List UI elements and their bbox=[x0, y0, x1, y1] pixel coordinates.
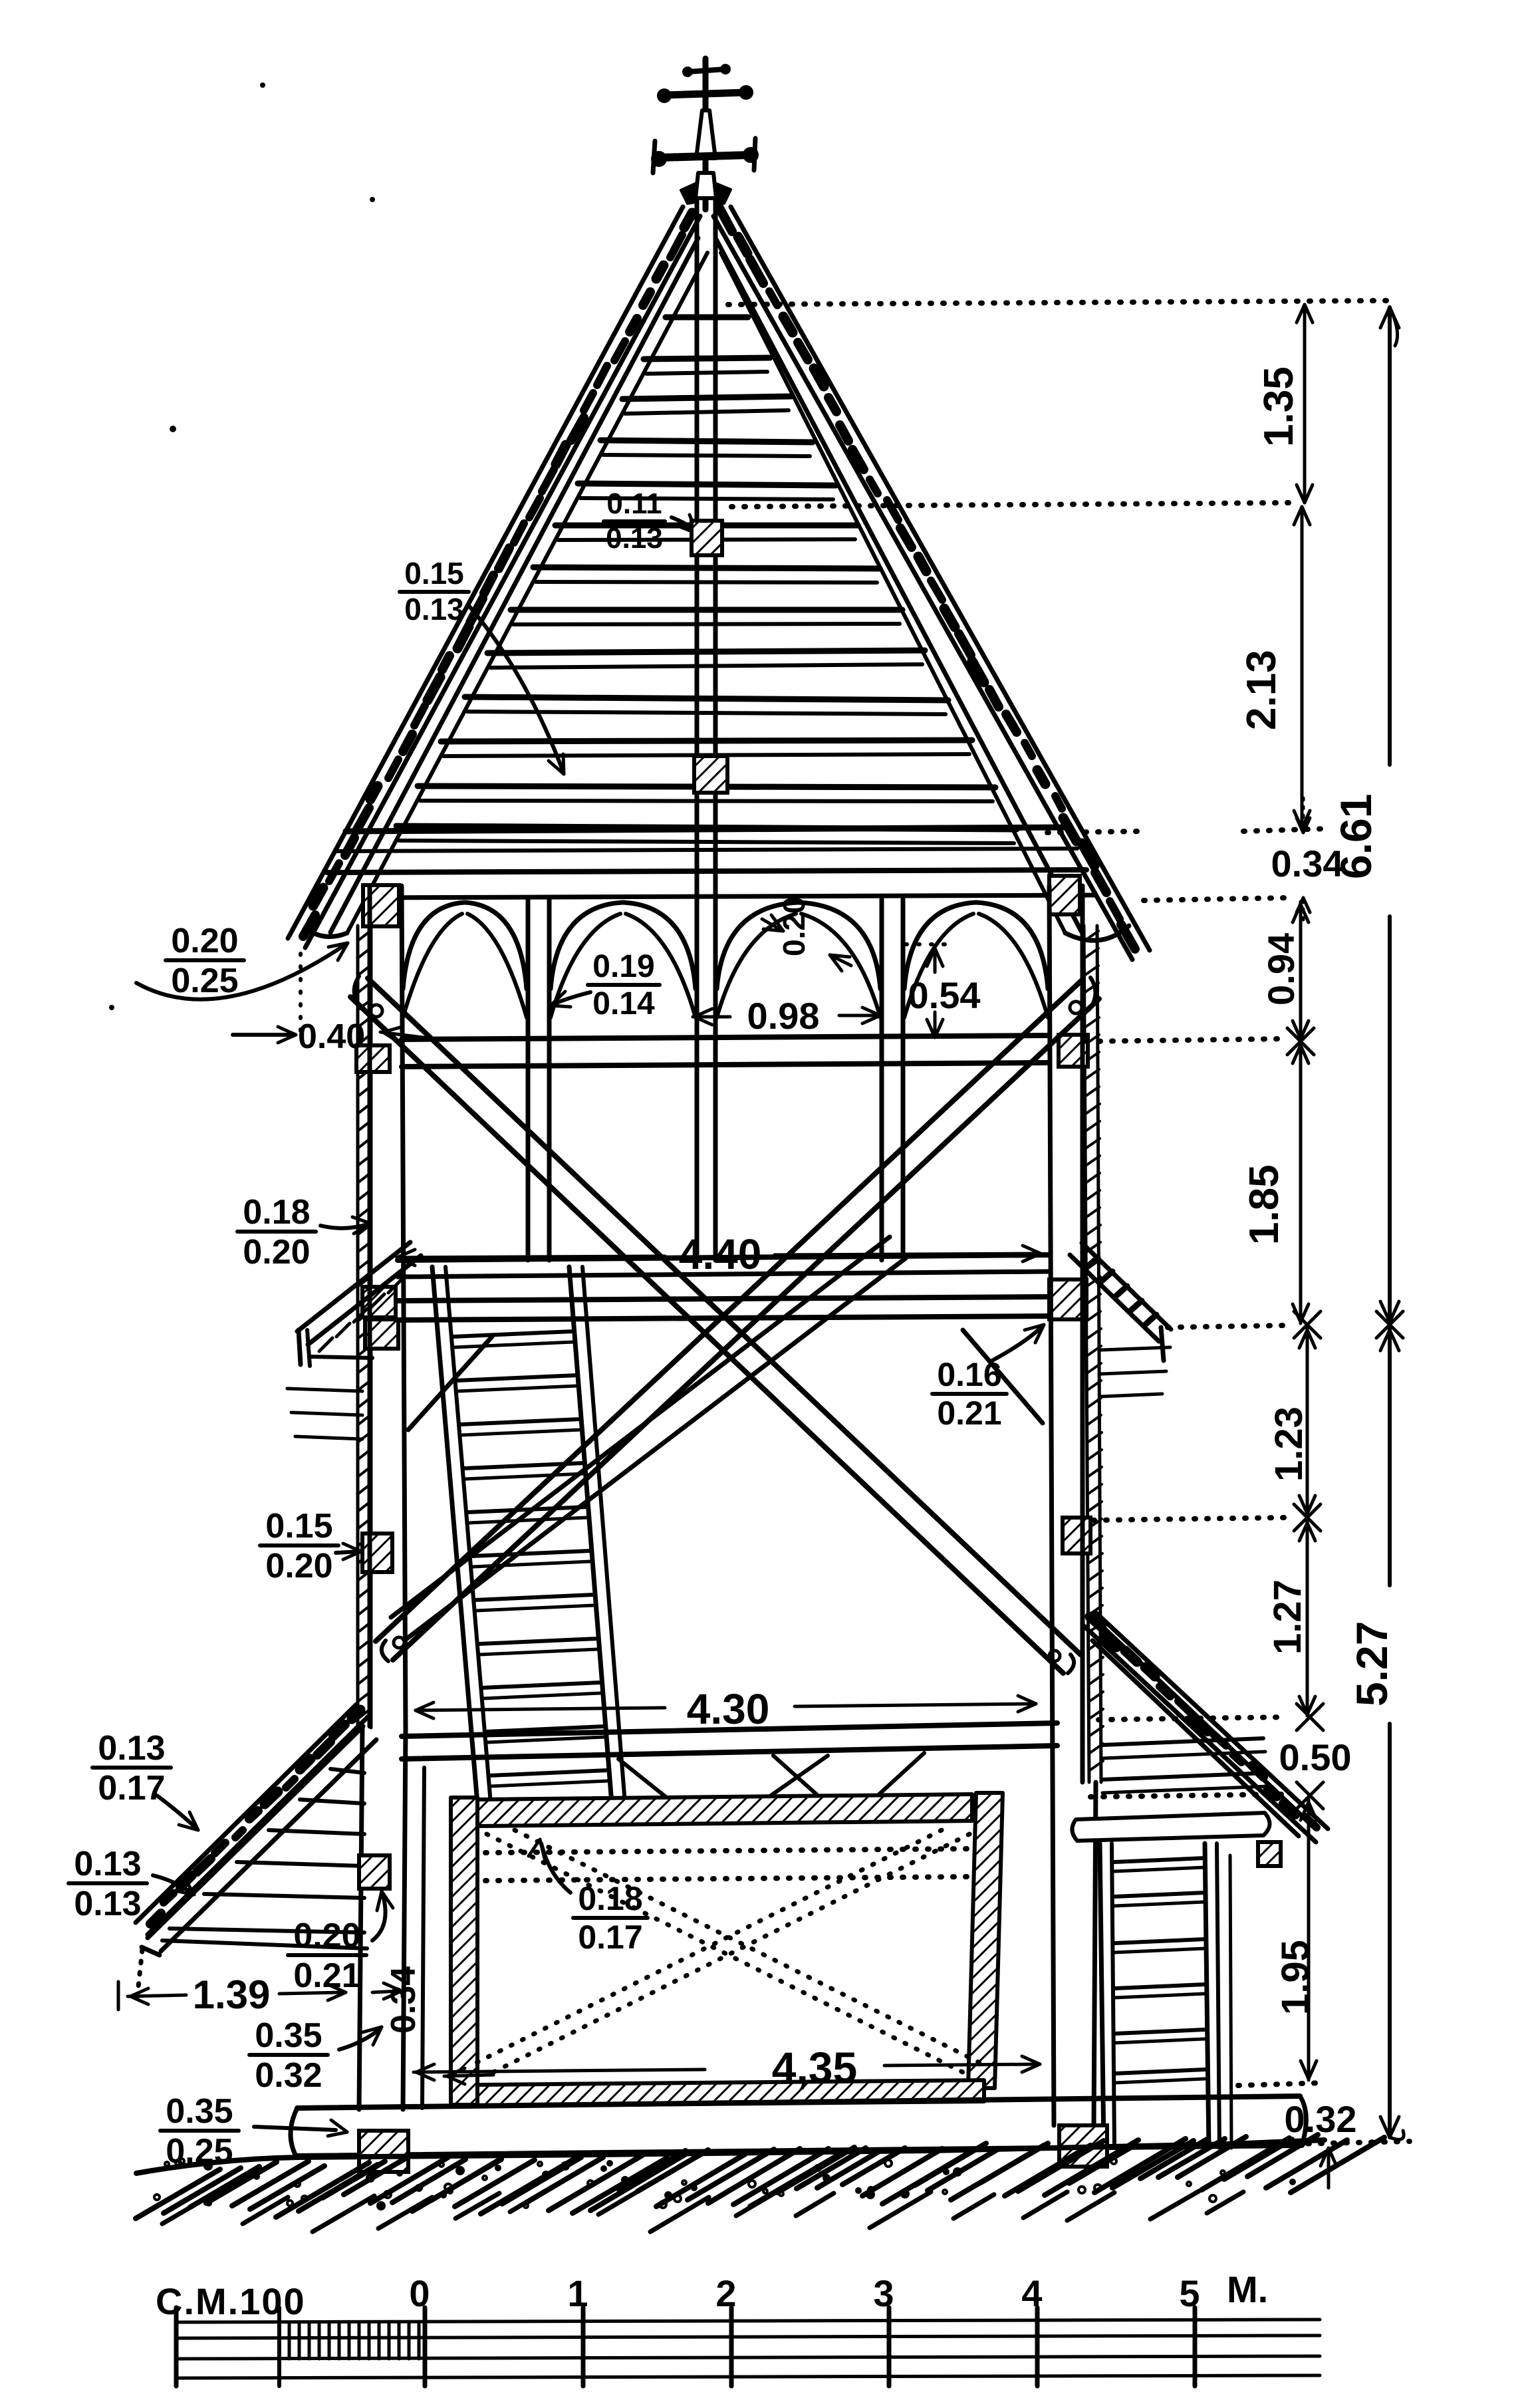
svg-text:1.95: 1.95 bbox=[1274, 1940, 1317, 2015]
svg-text:0.21: 0.21 bbox=[937, 1395, 1001, 1432]
svg-text:4: 4 bbox=[1021, 2272, 1042, 2314]
svg-text:0.35: 0.35 bbox=[255, 2016, 322, 2055]
svg-text:1.85: 1.85 bbox=[1241, 1164, 1287, 1245]
svg-text:0.54: 0.54 bbox=[908, 974, 981, 1016]
svg-text:0.35: 0.35 bbox=[166, 2092, 233, 2131]
svg-text:0.34: 0.34 bbox=[384, 1966, 423, 2034]
svg-text:1.35: 1.35 bbox=[1256, 366, 1302, 447]
svg-text:0.25: 0.25 bbox=[171, 962, 238, 1000]
svg-text:5.27: 5.27 bbox=[1347, 1621, 1396, 1706]
svg-text:0.94: 0.94 bbox=[1260, 933, 1302, 1005]
svg-text:C.M.100: C.M.100 bbox=[156, 2280, 306, 2322]
svg-text:4.40: 4.40 bbox=[679, 1230, 762, 1278]
svg-text:0.17: 0.17 bbox=[98, 1769, 165, 1807]
svg-text:4,35: 4,35 bbox=[772, 2043, 857, 2092]
svg-text:0.25: 0.25 bbox=[166, 2132, 233, 2171]
svg-text:0.20: 0.20 bbox=[293, 1917, 360, 1955]
svg-text:4.30: 4.30 bbox=[687, 1685, 770, 1733]
svg-text:0.32: 0.32 bbox=[255, 2056, 322, 2095]
svg-text:0.18: 0.18 bbox=[578, 1880, 642, 1917]
svg-text:1.39: 1.39 bbox=[193, 1972, 271, 2017]
svg-text:3: 3 bbox=[873, 2272, 894, 2314]
svg-text:0.50: 0.50 bbox=[1279, 1736, 1352, 1778]
svg-text:0: 0 bbox=[409, 2272, 430, 2314]
svg-text:0.20: 0.20 bbox=[243, 1233, 310, 1271]
svg-text:0.32: 0.32 bbox=[1285, 2098, 1357, 2140]
svg-text:2: 2 bbox=[715, 2272, 736, 2314]
svg-text:0.18: 0.18 bbox=[243, 1193, 310, 1232]
svg-text:0.13: 0.13 bbox=[606, 522, 663, 555]
svg-text:0.21: 0.21 bbox=[293, 1956, 360, 1995]
svg-text:M.: M. bbox=[1227, 2268, 1268, 2310]
svg-text:5: 5 bbox=[1179, 2272, 1200, 2314]
svg-text:0.14: 0.14 bbox=[592, 986, 655, 1021]
svg-text:0.17: 0.17 bbox=[578, 1919, 642, 1956]
svg-text:0.13: 0.13 bbox=[98, 1729, 165, 1768]
svg-text:0.98: 0.98 bbox=[747, 995, 820, 1037]
svg-text:0.13: 0.13 bbox=[404, 592, 464, 626]
svg-text:0.20: 0.20 bbox=[171, 922, 238, 960]
svg-text:0.40: 0.40 bbox=[298, 1017, 365, 1056]
svg-text:2.13: 2.13 bbox=[1239, 650, 1285, 730]
svg-text:0.15: 0.15 bbox=[404, 556, 464, 591]
svg-text:0.13: 0.13 bbox=[74, 1845, 141, 1883]
svg-text:0.20: 0.20 bbox=[265, 1547, 332, 1585]
svg-text:0.11: 0.11 bbox=[606, 487, 662, 520]
svg-text:6.61: 6.61 bbox=[1331, 794, 1380, 879]
svg-text:0.19: 0.19 bbox=[592, 949, 654, 984]
svg-text:0.13: 0.13 bbox=[74, 1885, 141, 1923]
svg-text:1.27: 1.27 bbox=[1266, 1579, 1309, 1655]
svg-text:0.15: 0.15 bbox=[265, 1507, 332, 1545]
svg-text:1: 1 bbox=[567, 2272, 588, 2314]
svg-text:1.23: 1.23 bbox=[1267, 1406, 1311, 1482]
